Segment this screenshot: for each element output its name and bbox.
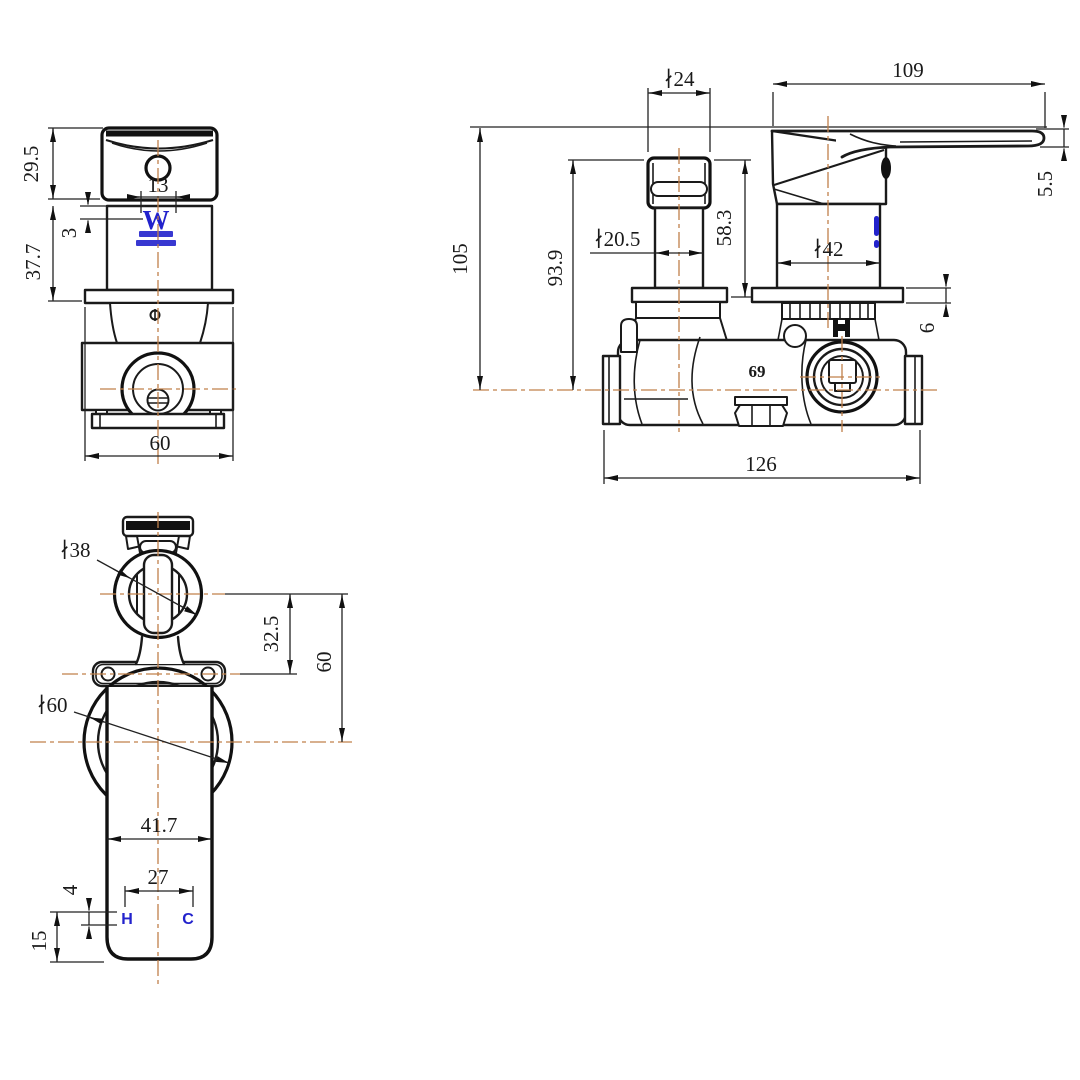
watermark-text-row1	[139, 231, 173, 237]
dim-label-lever-width: 41.7	[141, 813, 178, 837]
hot-port-label: H	[121, 911, 133, 928]
dim-label-stem-height: 93.9	[543, 250, 567, 287]
dim-label-total-height: 105	[448, 243, 472, 275]
body-marking: 69	[749, 362, 766, 381]
front-view: W 29.5 13	[19, 128, 238, 468]
cap-top-band	[106, 131, 213, 137]
drawing-canvas: W 29.5 13	[0, 0, 1080, 1080]
diverter-rod	[621, 319, 637, 352]
hex-plug	[735, 397, 787, 426]
dim-label-flange-thickness: 6	[915, 323, 939, 334]
dim-label-cap-to-flange: 58.3	[712, 210, 736, 247]
dim-label-logo-width: 13	[148, 173, 169, 197]
neck-flare-fill	[136, 637, 184, 664]
dim-label-port-inset: 15	[27, 931, 51, 952]
dim-label-port-offset: 4	[58, 884, 82, 895]
dome-section	[110, 303, 208, 343]
top-view: ∤38 ∤60 32.5 60 41.7 27 4	[27, 512, 352, 985]
dim-label-handle-dia: ∤42	[812, 237, 843, 261]
dim-label-escutcheon-dia: ∤60	[36, 693, 67, 717]
adjuster-screw	[833, 318, 850, 337]
dim-label-stem-cap-dia: ∤24	[663, 67, 695, 91]
watermark-logo-icon: W	[143, 205, 170, 235]
lever-pivot	[881, 157, 891, 179]
dim-label-knob-dia: ∤38	[59, 538, 90, 562]
retainer-detail	[784, 325, 806, 347]
stem-base	[636, 302, 720, 318]
dim-label-knob-to-lug: 32.5	[259, 616, 283, 653]
dim-label-port-spacing: 27	[148, 865, 169, 889]
dim-label-cap-height: 29.5	[19, 146, 43, 183]
watermark-fragment-dot	[874, 240, 879, 248]
dim-label-lever-length: 109	[892, 58, 924, 82]
technical-drawing: W 29.5 13	[0, 0, 1080, 1080]
dim-label-lever-thickness: 5.5	[1033, 171, 1057, 197]
watermark-text-row2	[136, 240, 176, 246]
cold-port-label: C	[182, 911, 194, 928]
wall-flange	[85, 290, 233, 303]
dim-label-plate-width: 60	[150, 431, 171, 455]
dim-label-stem-dia: ∤20.5	[594, 227, 641, 251]
dim-label-logo-offset: 3	[57, 228, 81, 239]
watermark-fragment	[874, 216, 879, 236]
dim-label-body-height: 37.7	[21, 244, 45, 281]
dim-label-body-width: 126	[745, 452, 777, 476]
side-view: 69 ∤24 109 105 93.9	[448, 58, 1069, 484]
dim-label-knob-to-center: 60	[312, 652, 336, 673]
